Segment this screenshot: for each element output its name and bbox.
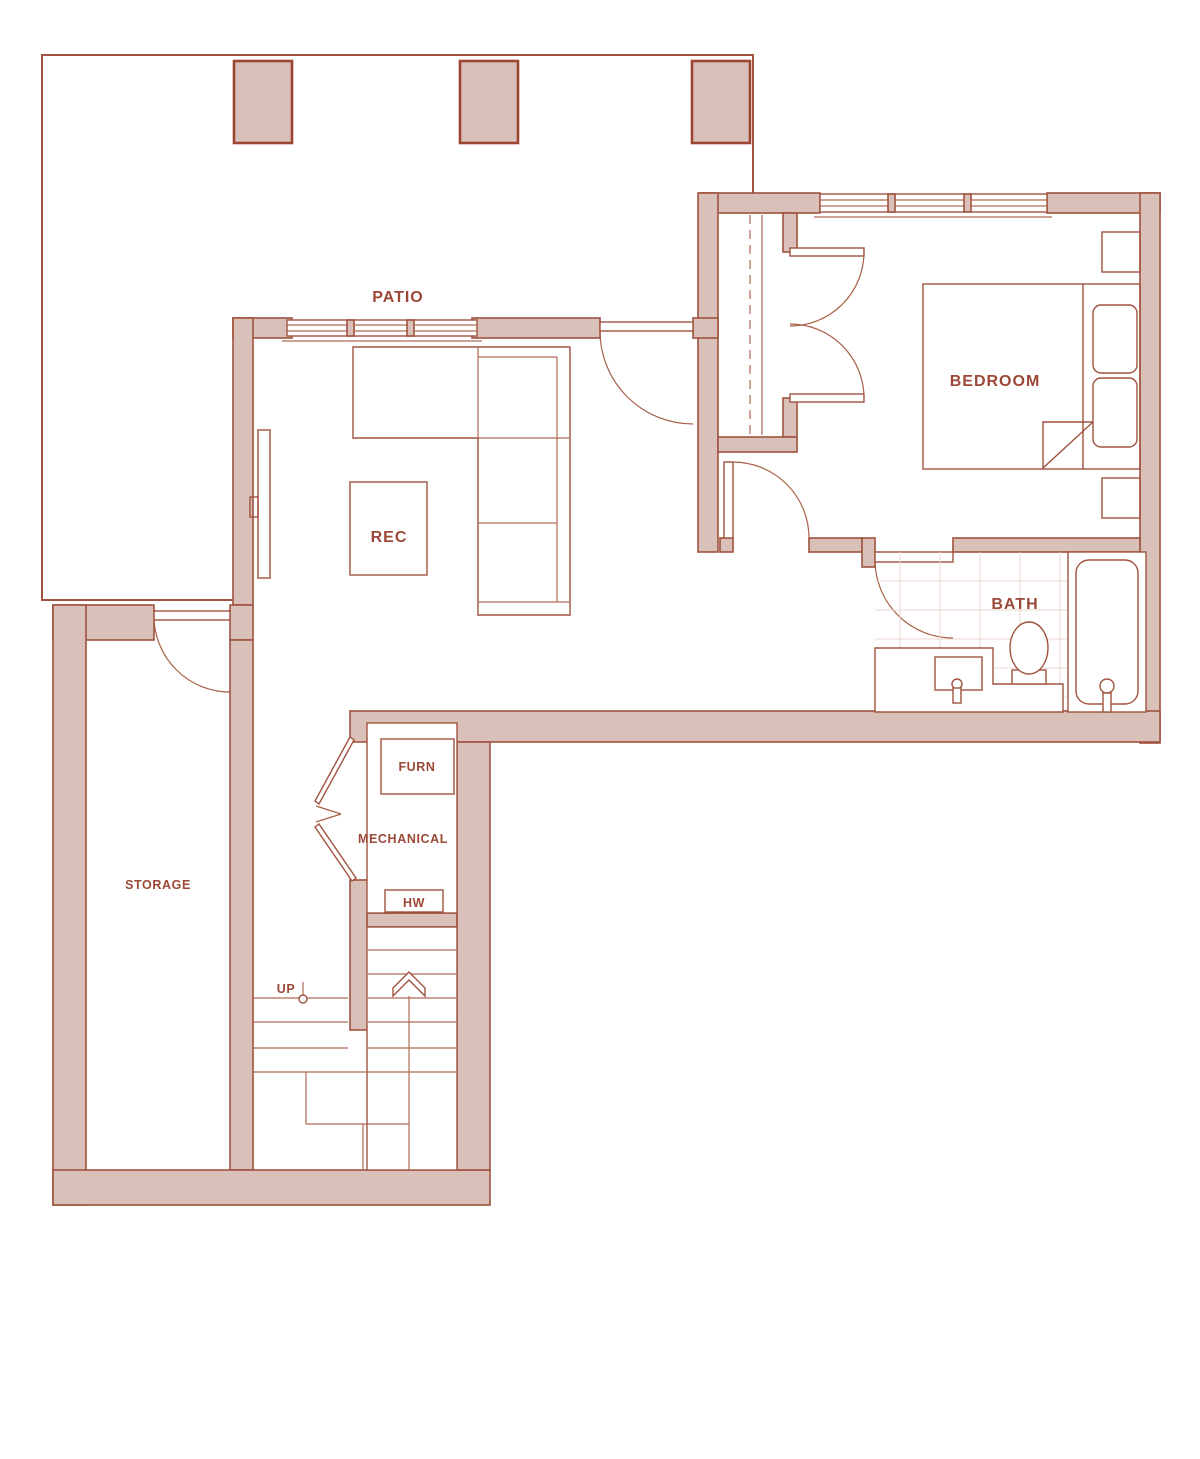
windows (282, 194, 1052, 341)
storage-label: STORAGE (125, 878, 191, 892)
mechanical-bifold-doors (315, 737, 356, 881)
rec-window (282, 320, 482, 341)
bath-label: BATH (991, 596, 1038, 613)
bathtub (1068, 552, 1146, 712)
toilet (1010, 622, 1048, 684)
nightstand (1102, 478, 1140, 518)
up-marker (299, 982, 307, 1003)
blanket-fold (1043, 422, 1093, 468)
patio-door (600, 322, 693, 424)
patio-column (460, 61, 518, 143)
bedroom-window (814, 194, 1052, 217)
storage-door (154, 611, 230, 692)
mechanical-label: MECHANICAL (358, 832, 448, 846)
bedroom-suite-door (724, 462, 809, 538)
furnace-label: FURN (398, 760, 435, 774)
pillow (1093, 305, 1137, 373)
bath-fixtures (875, 552, 1146, 712)
floor-plan-canvas: PATIO BEDROOM REC BATH STORAGE MECHANICA… (0, 0, 1200, 1459)
sink-faucet (952, 679, 962, 703)
nightstand (1102, 232, 1140, 272)
bedroom-label: BEDROOM (950, 373, 1041, 390)
room-labels: PATIO BEDROOM REC BATH STORAGE MECHANICA… (125, 289, 1040, 996)
stairs-up-label: UP (277, 982, 296, 996)
closet-rod-shelf (750, 215, 762, 435)
pillow (1093, 378, 1137, 447)
doors (154, 248, 953, 881)
bath-door (875, 552, 953, 638)
patio-column (692, 61, 750, 143)
floor-plan: PATIO BEDROOM REC BATH STORAGE MECHANICA… (0, 0, 1200, 1459)
patio-label: PATIO (372, 289, 424, 306)
rec-label: REC (371, 529, 408, 546)
patio-column (234, 61, 292, 143)
closet-double-doors (790, 248, 864, 402)
hot-water-label: HW (403, 896, 425, 910)
